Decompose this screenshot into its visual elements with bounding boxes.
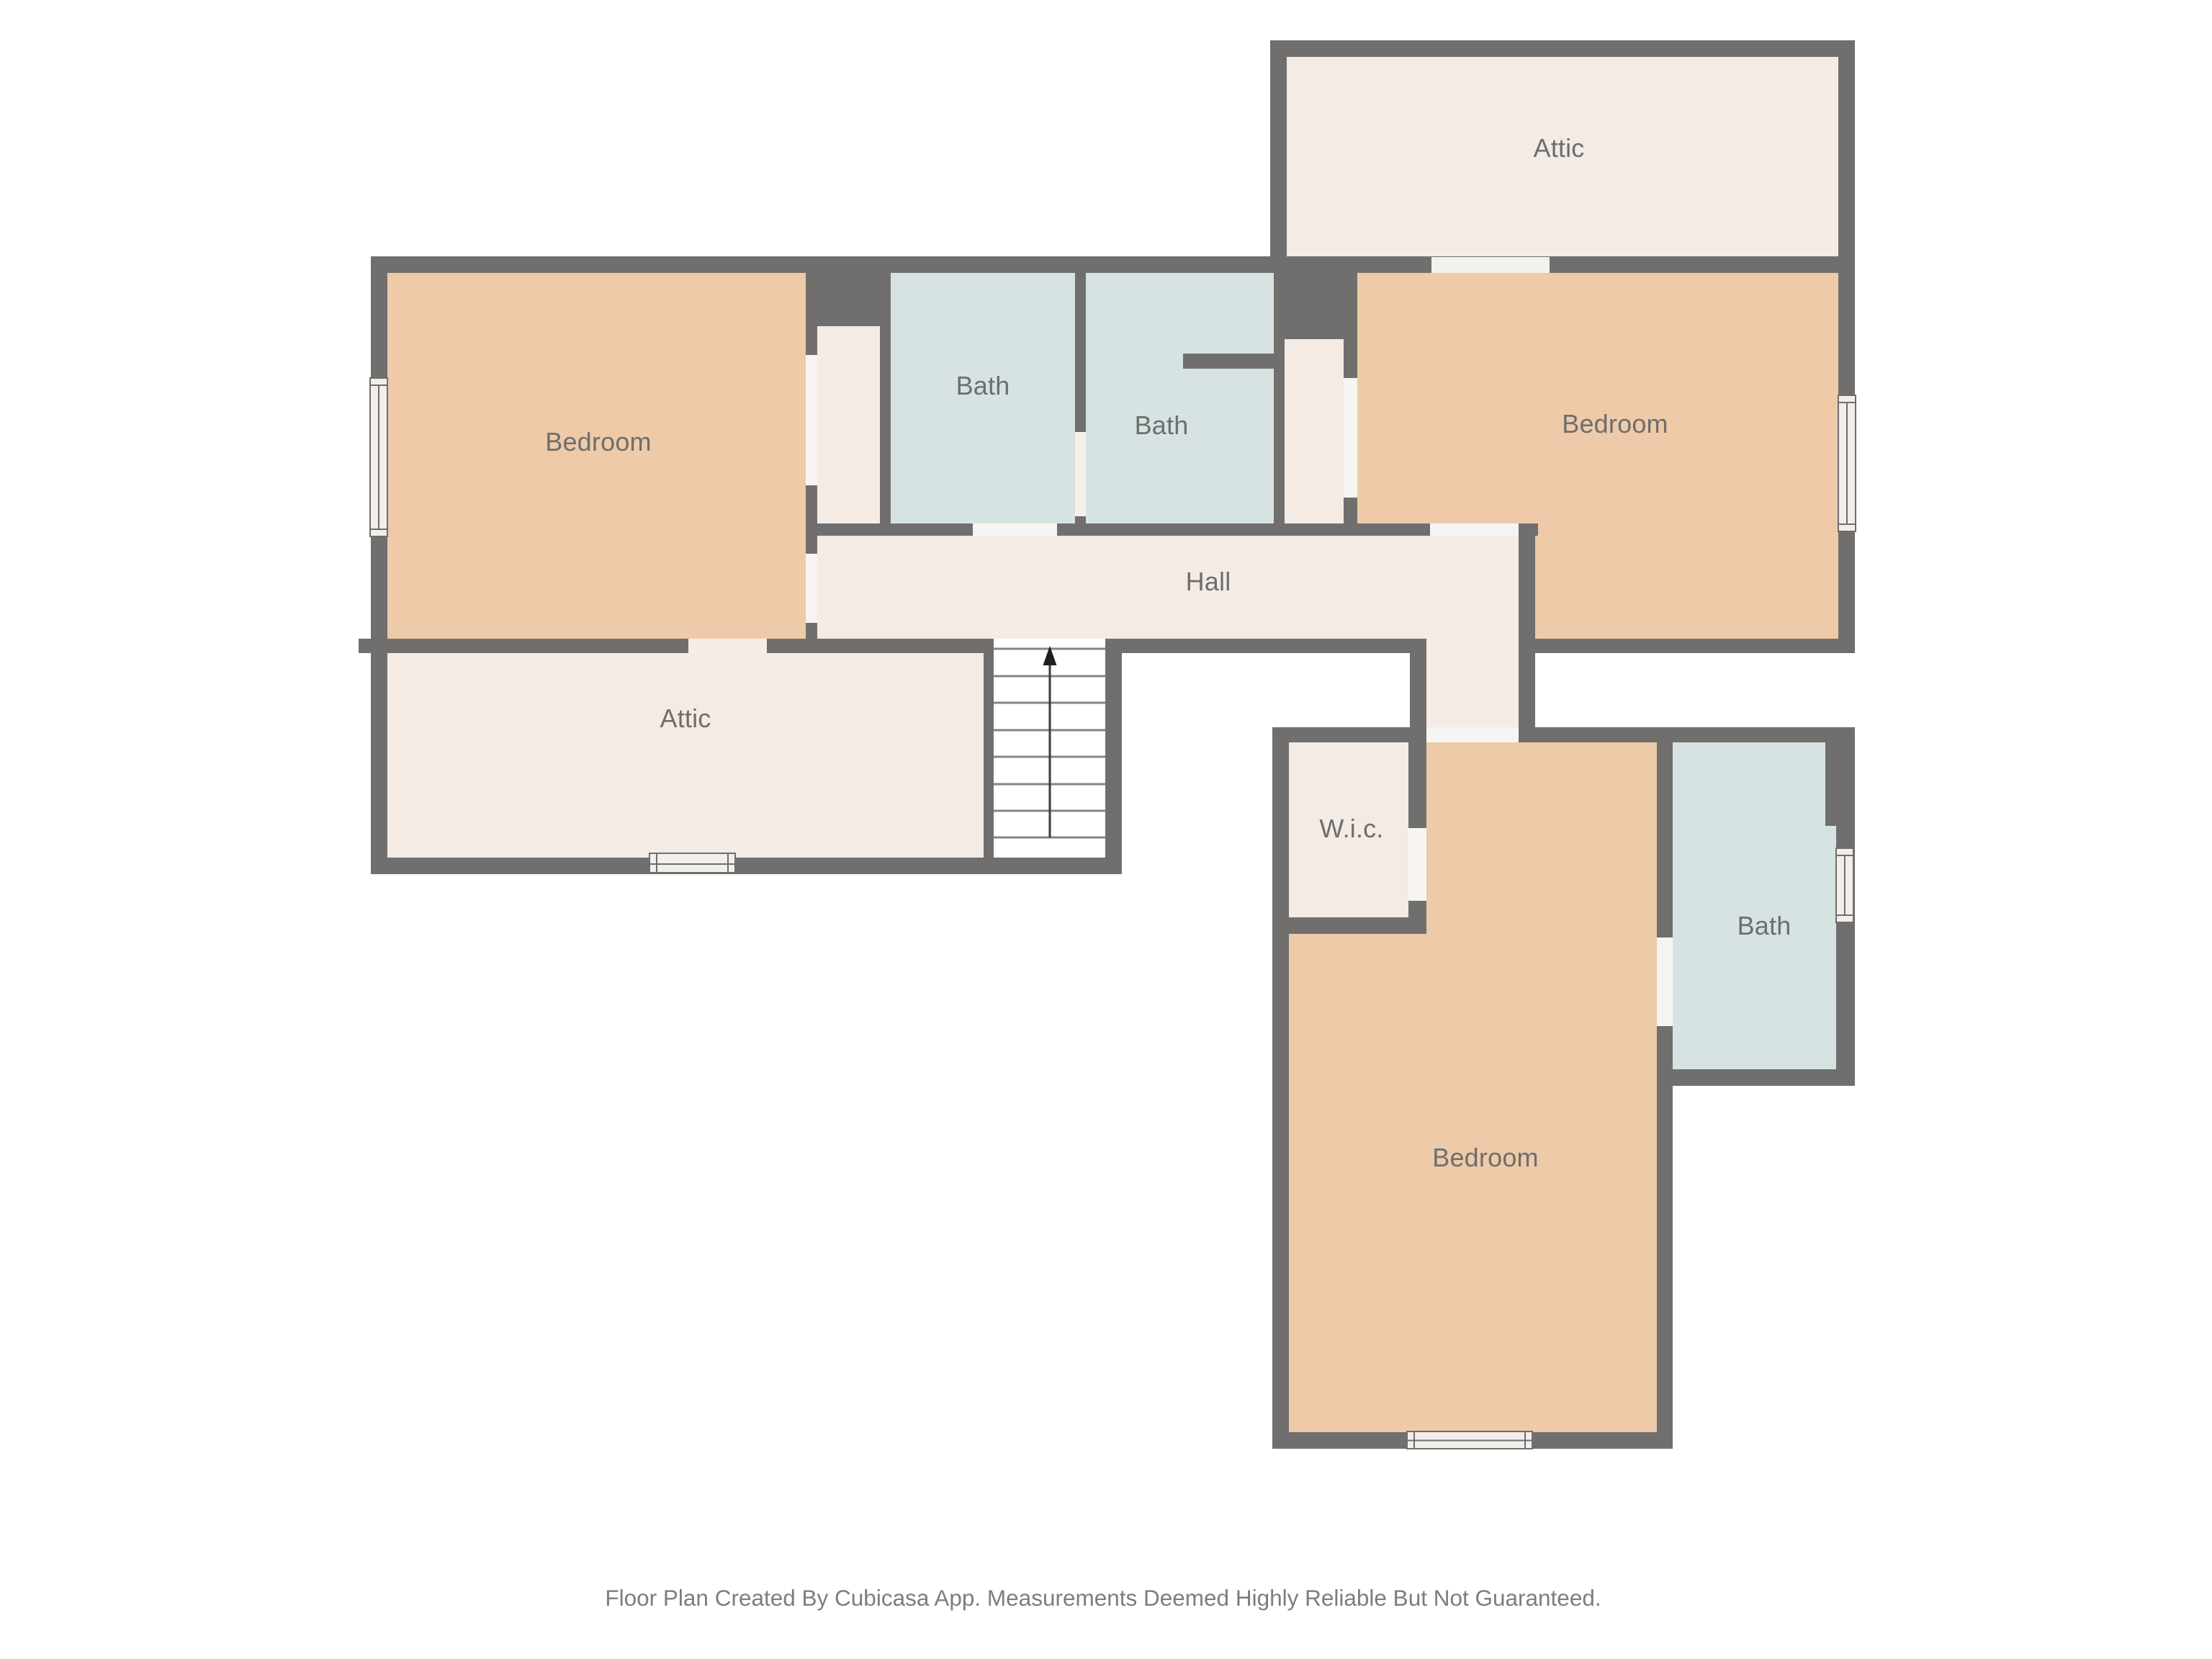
svg-text:Bath: Bath — [1737, 911, 1791, 940]
svg-text:Floor Plan Created By Cubicasa: Floor Plan Created By Cubicasa App. Meas… — [605, 1585, 1601, 1611]
svg-text:Attic: Attic — [1533, 133, 1584, 163]
svg-text:Bath: Bath — [956, 371, 1010, 400]
svg-text:Bedroom: Bedroom — [1562, 409, 1668, 439]
svg-text:Bath: Bath — [1135, 410, 1189, 440]
svg-text:W.i.c.: W.i.c. — [1319, 814, 1383, 843]
svg-text:Bedroom: Bedroom — [545, 427, 651, 457]
svg-text:Bedroom: Bedroom — [1432, 1143, 1538, 1172]
svg-text:Hall: Hall — [1186, 567, 1231, 596]
svg-text:Attic: Attic — [660, 703, 711, 733]
